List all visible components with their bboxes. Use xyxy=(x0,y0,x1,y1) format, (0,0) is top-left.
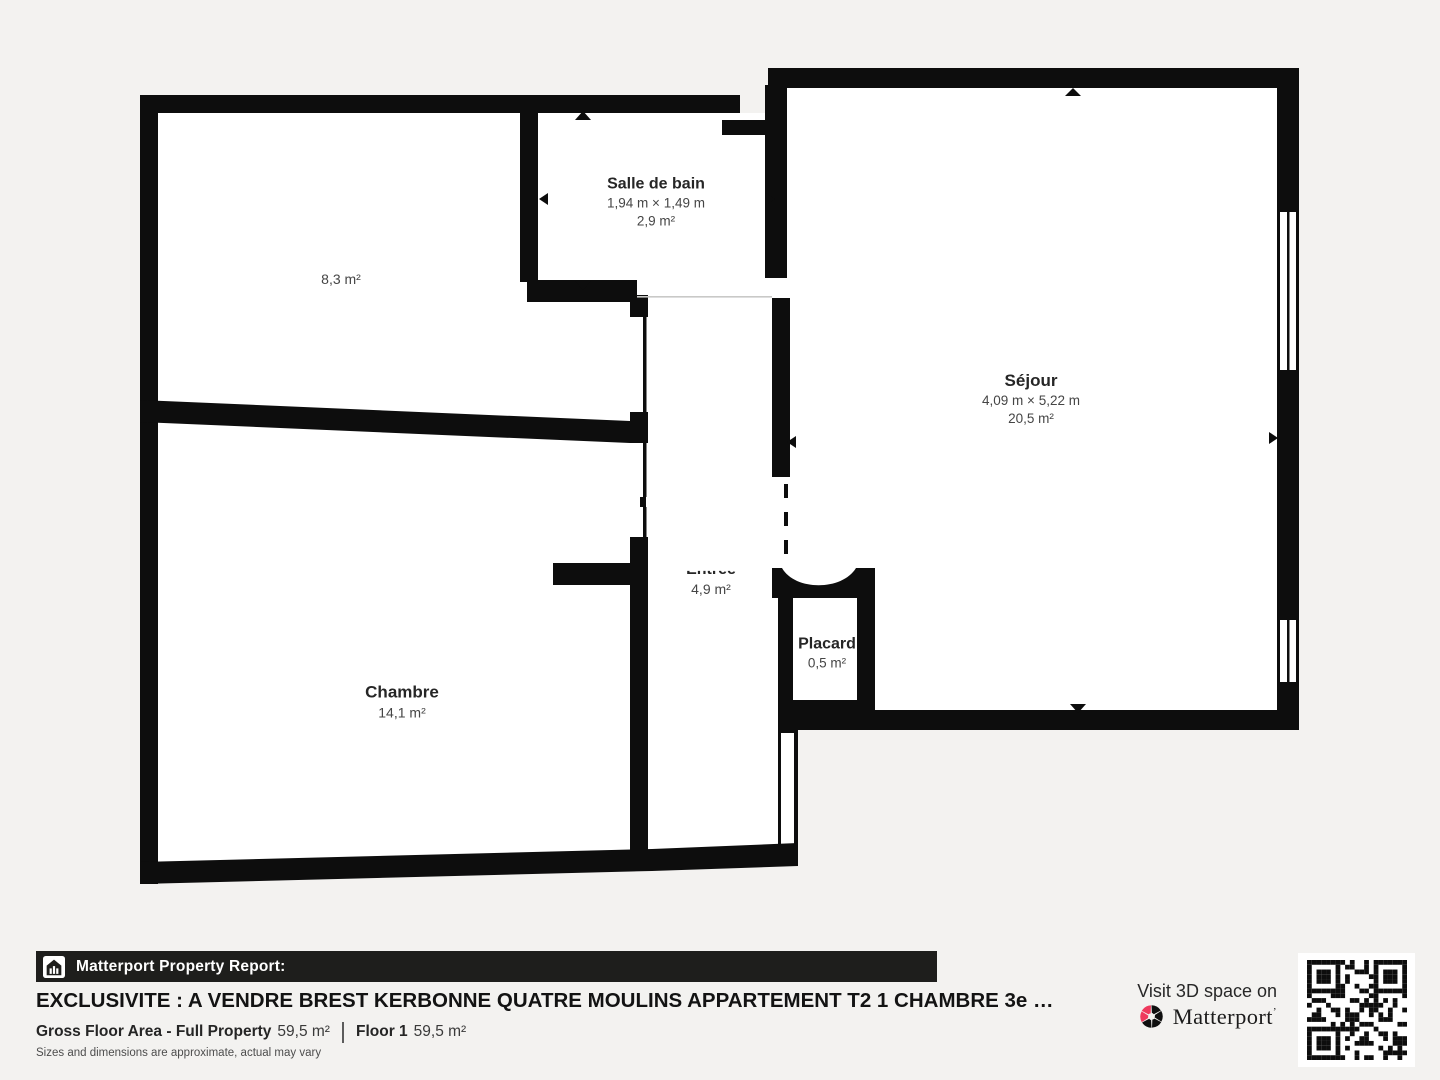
floor-area-summary: Gross Floor Area - Full Property 59,5 m²… xyxy=(36,1020,466,1044)
room-label-chambre: Chambre 14,1 m² xyxy=(365,682,439,723)
disclaimer-text: Sizes and dimensions are approximate, ac… xyxy=(36,1047,321,1059)
room-label-8-3: 8,3 m² xyxy=(321,270,361,288)
floor-value: 59,5 m² xyxy=(414,1023,467,1041)
qr-code xyxy=(1298,953,1415,1067)
room-label-entree: Entrée 4,9 m² xyxy=(686,559,736,599)
room-area: 8,3 m² xyxy=(321,270,361,288)
listing-title: EXCLUSIVITE : A VENDRE BREST KERBONNE QU… xyxy=(36,989,1146,1013)
report-bar: Matterport Property Report: xyxy=(36,951,937,982)
room-name: Salle de bain xyxy=(607,174,705,195)
room-area: 20,5 m² xyxy=(982,410,1080,428)
matterport-logo-icon xyxy=(1138,1003,1165,1030)
room-labels: 8,3 m² Salle de bain 1,94 m × 1,49 m 2,9… xyxy=(0,0,1440,940)
room-label-sejour: Séjour 4,09 m × 5,22 m 20,5 m² xyxy=(982,370,1080,428)
floor-label: Floor 1 xyxy=(356,1023,408,1041)
room-area: 14,1 m² xyxy=(365,704,439,722)
room-name: Chambre xyxy=(365,682,439,704)
room-name: Placard xyxy=(798,634,856,655)
gross-floor-area-value: 59,5 m² xyxy=(277,1023,330,1041)
matterport-wordmark: Matterport’ xyxy=(1173,1004,1277,1030)
matterport-brand: Matterport’ xyxy=(1138,1003,1277,1030)
visit-3d-line: Visit 3D space on xyxy=(1137,981,1277,1002)
room-name: Entrée xyxy=(686,559,736,580)
room-area: 2,9 m² xyxy=(607,213,705,231)
room-area: 0,5 m² xyxy=(798,655,856,673)
room-label-salle-de-bain: Salle de bain 1,94 m × 1,49 m 2,9 m² xyxy=(607,174,705,231)
room-area: 4,9 m² xyxy=(686,580,736,598)
room-dimensions: 4,09 m × 5,22 m xyxy=(982,392,1080,410)
gross-floor-area-label: Gross Floor Area - Full Property xyxy=(36,1023,271,1041)
house-bars-icon xyxy=(43,956,65,978)
room-dimensions: 1,94 m × 1,49 m xyxy=(607,195,705,213)
room-name: Séjour xyxy=(982,370,1080,392)
divider xyxy=(342,1022,344,1043)
report-bar-label: Matterport Property Report: xyxy=(76,958,286,976)
room-label-placard: Placard 0,5 m² xyxy=(798,634,856,673)
